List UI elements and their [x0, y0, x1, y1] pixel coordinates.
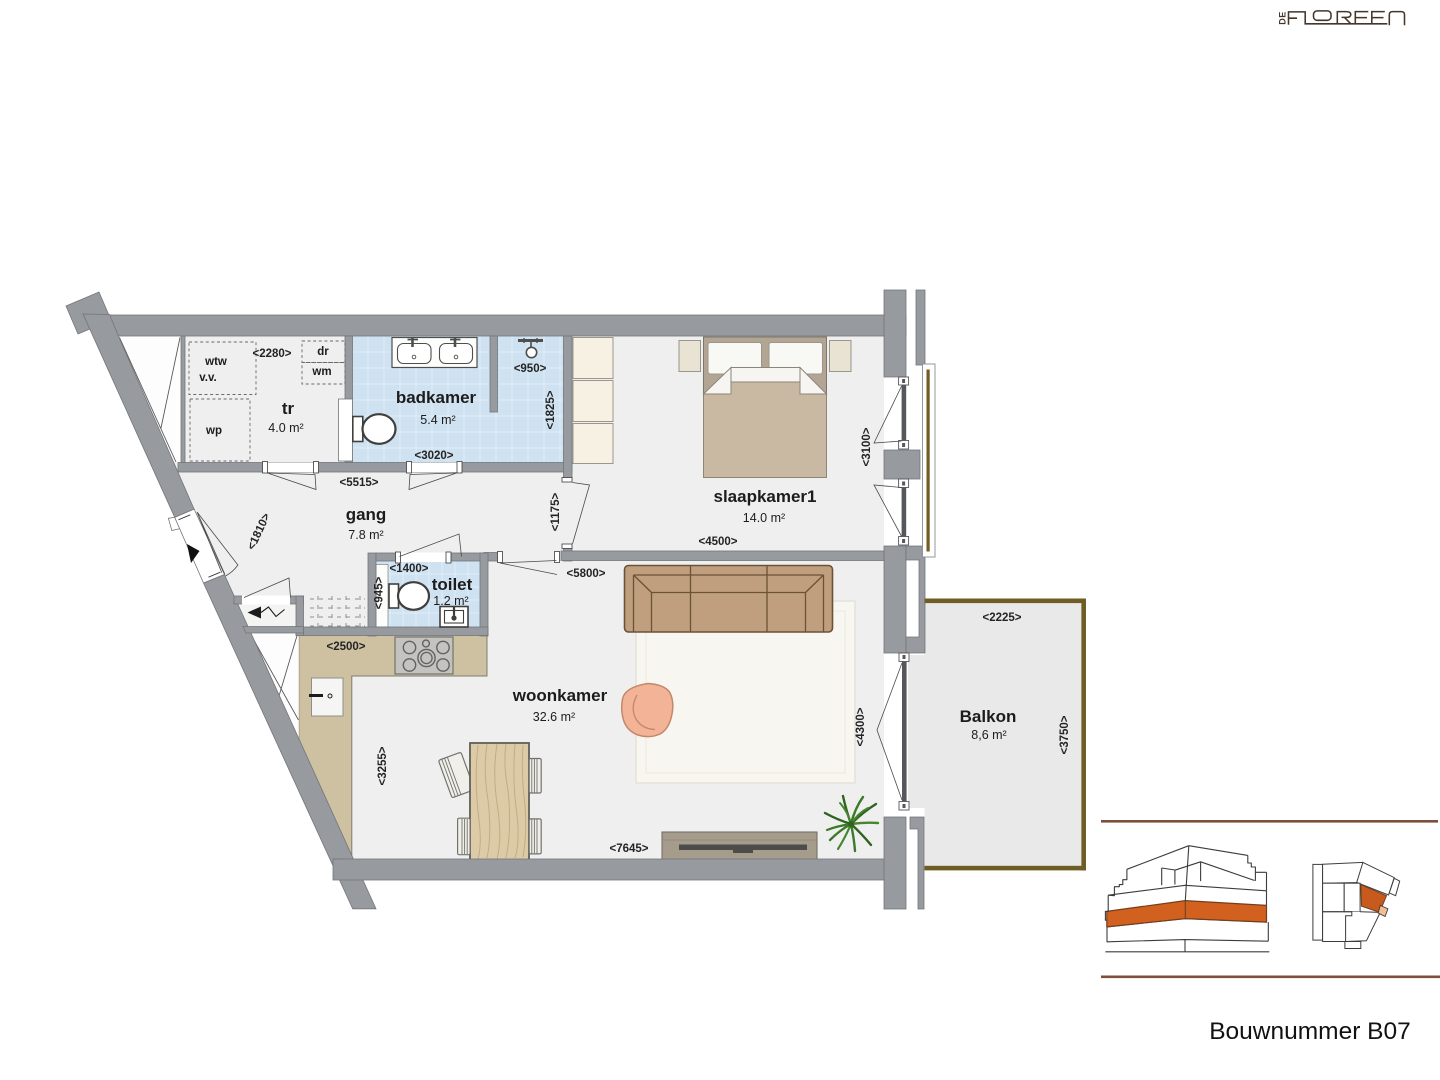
svg-text:14.0 m²: 14.0 m²: [743, 511, 785, 525]
svg-text:5.4 m²: 5.4 m²: [420, 413, 455, 427]
svg-text:<3255>: <3255>: [377, 746, 389, 785]
svg-text:DE: DE: [1278, 11, 1288, 25]
svg-text:<1400>: <1400>: [389, 563, 428, 575]
svg-text:<4500>: <4500>: [698, 536, 737, 548]
svg-text:<5515>: <5515>: [339, 477, 378, 489]
svg-text:<4300>: <4300>: [855, 707, 867, 746]
svg-text:32.6 m²: 32.6 m²: [533, 710, 575, 724]
svg-text:<7645>: <7645>: [609, 843, 648, 855]
svg-text:7.8 m²: 7.8 m²: [348, 528, 383, 542]
svg-text:badkamer: badkamer: [396, 388, 477, 407]
svg-text:<945>: <945>: [374, 576, 386, 609]
svg-text:4.0 m²: 4.0 m²: [268, 421, 303, 435]
svg-text:<1825>: <1825>: [545, 390, 557, 429]
svg-text:dr: dr: [317, 346, 329, 358]
svg-text:<1175>: <1175>: [550, 493, 562, 532]
svg-text:<2500>: <2500>: [326, 641, 365, 653]
svg-text:<2225>: <2225>: [982, 612, 1021, 624]
svg-text:<5800>: <5800>: [566, 568, 605, 580]
svg-text:toilet: toilet: [432, 575, 473, 594]
svg-text:Balkon: Balkon: [960, 707, 1017, 726]
svg-text:wm: wm: [311, 366, 331, 378]
svg-text:gang: gang: [346, 505, 387, 524]
svg-text:<3020>: <3020>: [414, 450, 453, 462]
svg-text:woonkamer: woonkamer: [512, 686, 608, 705]
svg-text:1.2 m²: 1.2 m²: [433, 594, 468, 608]
svg-text:v.v.: v.v.: [199, 372, 216, 384]
svg-text:<950>: <950>: [514, 363, 547, 375]
svg-text:wtw: wtw: [204, 356, 227, 368]
svg-text:slaapkamer1: slaapkamer1: [713, 487, 816, 506]
svg-text:Bouwnummer B07: Bouwnummer B07: [1209, 1018, 1411, 1045]
svg-text:wp: wp: [205, 425, 222, 437]
svg-text:<2280>: <2280>: [252, 348, 291, 360]
svg-text:<3100>: <3100>: [861, 427, 873, 466]
svg-text:<3750>: <3750>: [1059, 715, 1071, 754]
svg-text:8,6 m²: 8,6 m²: [971, 728, 1006, 742]
svg-text:tr: tr: [282, 399, 295, 418]
